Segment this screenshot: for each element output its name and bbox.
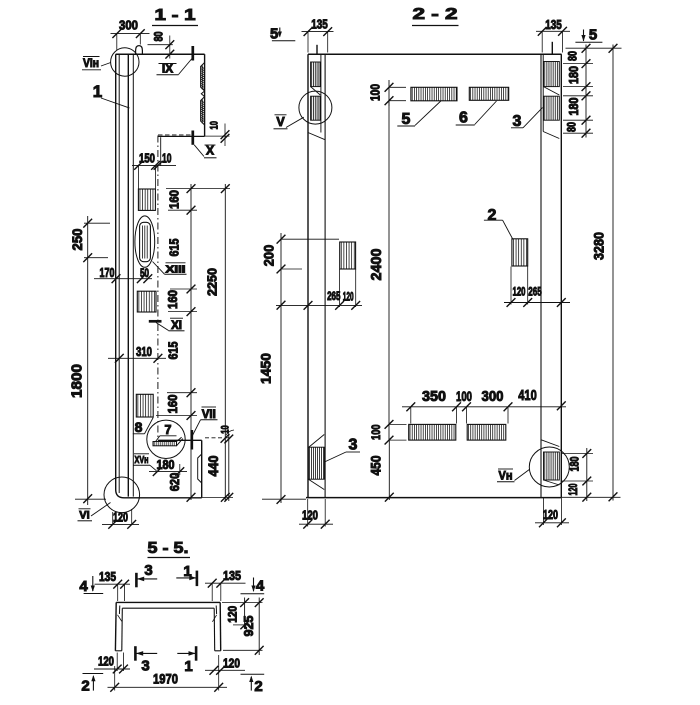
svg-text:6: 6 — [459, 110, 468, 127]
svg-text:450: 450 — [369, 456, 384, 476]
svg-text:XI: XI — [171, 320, 182, 332]
svg-text:2250: 2250 — [205, 268, 220, 296]
svg-text:X: X — [206, 144, 214, 158]
svg-text:120: 120 — [98, 655, 114, 669]
svg-text:2400: 2400 — [369, 249, 385, 281]
svg-text:265: 265 — [528, 285, 542, 299]
svg-text:VIн: VIн — [83, 58, 99, 70]
svg-text:2: 2 — [254, 678, 262, 695]
svg-text:80: 80 — [154, 32, 166, 42]
svg-text:160: 160 — [168, 190, 182, 209]
svg-text:1800: 1800 — [69, 364, 86, 398]
svg-text:V: V — [276, 115, 285, 129]
svg-text:2 - 2: 2 - 2 — [413, 6, 458, 23]
svg-text:200: 200 — [262, 245, 277, 267]
svg-text:120: 120 — [223, 657, 240, 671]
svg-text:2: 2 — [81, 678, 89, 695]
svg-text:160: 160 — [166, 394, 180, 413]
svg-text:135: 135 — [545, 18, 562, 32]
svg-text:80: 80 — [568, 51, 580, 61]
svg-text:265: 265 — [327, 289, 341, 303]
svg-text:135: 135 — [311, 18, 328, 32]
svg-text:7: 7 — [165, 423, 172, 437]
svg-text:170: 170 — [100, 266, 115, 280]
svg-text:XVн: XVн — [135, 455, 149, 466]
svg-text:1450: 1450 — [258, 353, 274, 384]
svg-text:300: 300 — [119, 18, 138, 33]
svg-text:10: 10 — [219, 425, 231, 434]
svg-text:350: 350 — [422, 389, 446, 405]
svg-text:4: 4 — [79, 578, 88, 595]
svg-text:615: 615 — [167, 341, 181, 359]
svg-text:1: 1 — [184, 658, 192, 675]
svg-text:180: 180 — [567, 97, 581, 115]
svg-text:100: 100 — [369, 84, 383, 101]
svg-text:310: 310 — [136, 344, 152, 359]
svg-text:120: 120 — [566, 483, 580, 495]
svg-text:925: 925 — [241, 616, 256, 637]
svg-text:Vн: Vн — [499, 471, 513, 483]
svg-text:VII: VII — [202, 409, 216, 421]
svg-text:620: 620 — [167, 473, 182, 492]
svg-text:120: 120 — [302, 509, 318, 523]
svg-text:4: 4 — [256, 578, 265, 595]
svg-text:180: 180 — [568, 456, 582, 471]
svg-text:5: 5 — [270, 26, 278, 43]
svg-text:5: 5 — [402, 111, 411, 128]
svg-text:300: 300 — [482, 389, 504, 405]
svg-text:120: 120 — [225, 606, 239, 623]
svg-text:3: 3 — [144, 562, 152, 579]
svg-text:120: 120 — [543, 508, 558, 522]
svg-text:250: 250 — [70, 229, 85, 251]
svg-text:VI: VI — [79, 510, 89, 522]
svg-text:3: 3 — [141, 658, 149, 675]
svg-text:180: 180 — [567, 66, 581, 84]
svg-text:1: 1 — [93, 82, 102, 101]
svg-text:2: 2 — [488, 207, 497, 224]
svg-text:1 - 1: 1 - 1 — [155, 7, 196, 24]
svg-text:135: 135 — [223, 569, 241, 583]
svg-text:10: 10 — [209, 121, 221, 130]
svg-text:10: 10 — [162, 152, 172, 166]
svg-text:100: 100 — [369, 424, 383, 440]
svg-text:3280: 3280 — [591, 232, 607, 260]
svg-text:135: 135 — [99, 570, 116, 584]
svg-text:5: 5 — [589, 27, 597, 44]
svg-text:440: 440 — [206, 456, 221, 477]
svg-text:100: 100 — [456, 388, 472, 404]
svg-text:1970: 1970 — [153, 672, 178, 687]
svg-text:410: 410 — [518, 388, 537, 404]
svg-text:615: 615 — [168, 238, 182, 256]
svg-text:8: 8 — [135, 419, 143, 435]
svg-text:3: 3 — [349, 437, 358, 454]
svg-text:160: 160 — [166, 290, 180, 309]
svg-text:80: 80 — [567, 122, 579, 132]
svg-text:5 - 5.: 5 - 5. — [148, 540, 189, 557]
svg-text:120: 120 — [513, 285, 526, 299]
